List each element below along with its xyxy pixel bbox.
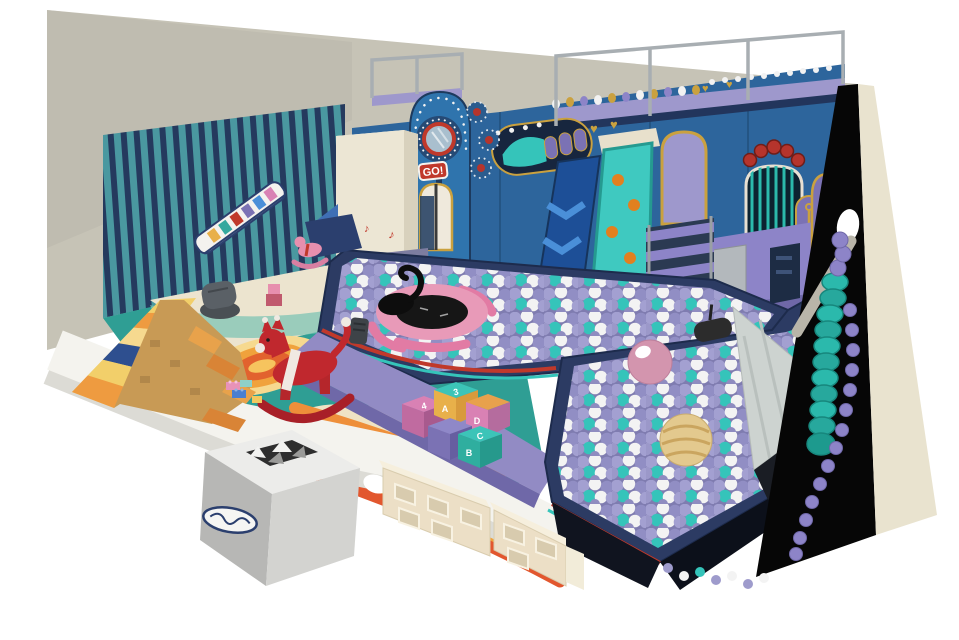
heart-decor-icon: ♥ <box>610 117 618 132</box>
ramp-hole <box>624 252 636 264</box>
toy-robot <box>266 284 282 306</box>
go-sign: GO! <box>418 162 448 181</box>
service-door-slot <box>776 256 792 260</box>
heart-decor-icon: ♥ <box>590 121 598 136</box>
arched-door <box>420 184 452 250</box>
arch-window-gold <box>662 132 706 224</box>
block-letter: B <box>466 448 473 458</box>
ramp-hole <box>606 226 618 238</box>
heart-decor-icon: ♥ <box>702 83 709 95</box>
playground-render: ♥ ♥ ♥ ♥ <box>0 0 959 640</box>
yellow-ball <box>660 414 712 466</box>
pink-ball <box>628 340 672 384</box>
music-note-icon: ♪ <box>364 223 370 235</box>
block-letter: D <box>474 416 481 426</box>
service-door-slot <box>776 270 792 274</box>
ramp-hole <box>628 199 640 211</box>
block-letter: A <box>442 404 449 414</box>
go-sign-label: GO! <box>422 165 444 179</box>
ramp-hole <box>612 174 624 186</box>
heart-decor-icon: ♥ <box>726 79 733 91</box>
speaker-box <box>349 317 370 345</box>
